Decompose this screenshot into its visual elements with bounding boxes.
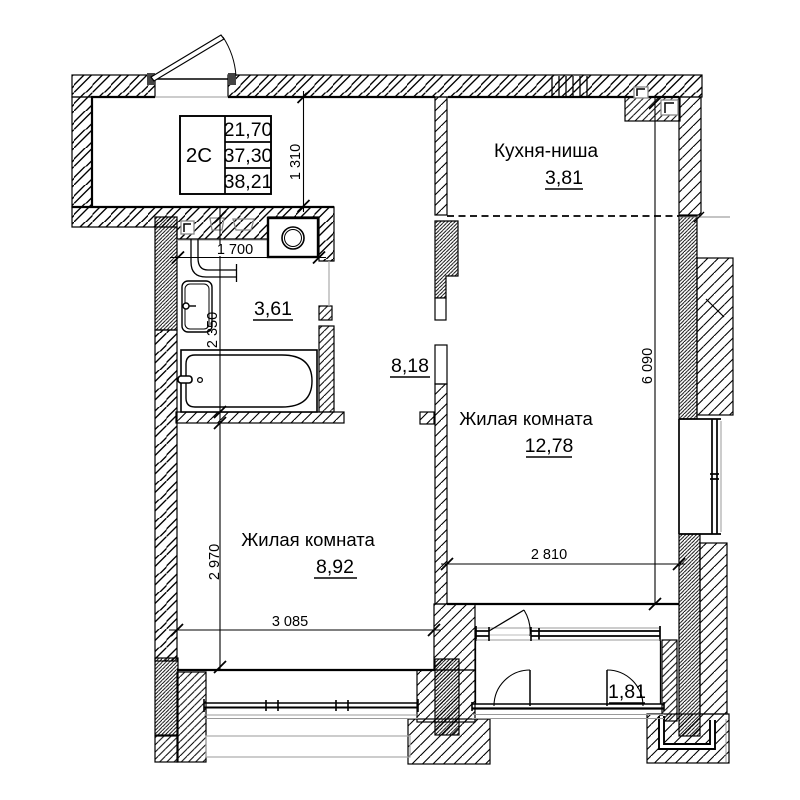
svg-text:2 350: 2 350 [205,312,221,348]
svg-text:12,78: 12,78 [525,435,574,457]
svg-text:38,21: 38,21 [224,171,273,193]
svg-text:1,81: 1,81 [608,681,646,703]
svg-text:21,70: 21,70 [224,119,273,141]
svg-text:37,30: 37,30 [224,145,273,167]
svg-text:1 310: 1 310 [288,144,304,180]
svg-text:2 810: 2 810 [531,547,567,563]
svg-text:Кухня-ниша: Кухня-ниша [494,141,599,162]
svg-text:6 090: 6 090 [640,348,656,384]
svg-text:Жилая комната: Жилая комната [459,408,593,429]
svg-text:3 085: 3 085 [272,614,308,630]
svg-text:Жилая комната: Жилая комната [241,529,375,550]
svg-text:3,61: 3,61 [254,298,292,320]
svg-text:2С: 2С [186,144,212,167]
svg-text:8,18: 8,18 [391,355,429,377]
svg-text:3,81: 3,81 [545,167,583,189]
svg-text:1 700: 1 700 [217,242,253,258]
svg-text:2 970: 2 970 [207,544,223,580]
svg-text:8,92: 8,92 [316,556,354,578]
